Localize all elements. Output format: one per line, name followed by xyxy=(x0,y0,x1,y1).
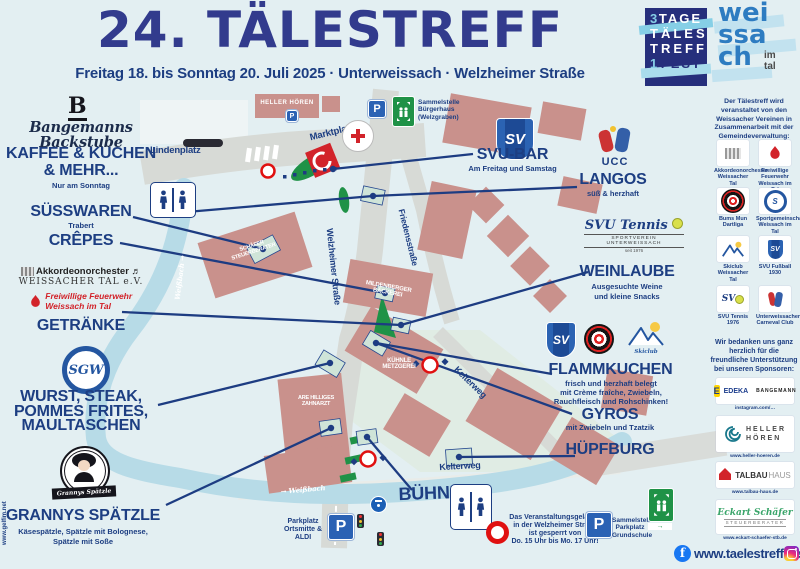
stall-crepes-title: CRÊPES xyxy=(0,233,162,250)
stall-kaffee-note: Nur am Sonntag xyxy=(0,182,162,190)
jester-hat-dot xyxy=(610,126,616,132)
club-skiclub: Skiclub Weissacher Tal xyxy=(714,236,752,283)
stall-suesswaren-note: Trabert xyxy=(0,222,162,230)
fest-tage: TAGE xyxy=(659,11,702,26)
jester-mini-blue xyxy=(773,291,782,307)
talbau-bold: TALBAU xyxy=(735,471,767,480)
akkordeon-logo: Akkordeonorchester ♬ WEISSACHER TAL e.V. xyxy=(8,266,154,287)
bangemann-logo: B xyxy=(68,94,87,121)
svu-shield-text: SV xyxy=(505,131,525,148)
club-feuerwehr: Freiwillige Feuerwehr Weissach im Tal xyxy=(756,140,794,193)
festival-poster: 24. TÄLESTREFF Freitag 18. bis Sonntag 2… xyxy=(0,0,800,569)
house-icon xyxy=(719,470,731,480)
grannys-banner-text: Grannys Spätzle xyxy=(57,488,112,498)
path-sign-glyph-2 xyxy=(377,504,380,507)
building-kuehnle: KÜHNLE METZGEREI xyxy=(372,358,426,370)
club-caption: SVU Tennis 1976 xyxy=(714,314,752,327)
parking-sign-aldi: P xyxy=(328,514,354,540)
parking-sign-top: P xyxy=(368,100,386,118)
edeka-logo-icon: E xyxy=(714,385,720,397)
assembly-top-line3: (Welzgraben) xyxy=(418,114,478,121)
svu-shield-small-text: SV xyxy=(553,333,569,347)
mountain-sun-icon xyxy=(626,320,666,348)
ucc-jester-logo xyxy=(596,126,636,158)
building-heller-hoeren: HELLER HÖREN xyxy=(256,100,318,106)
parking-aldi-caption: Parkplatz Ortsmitte & ALDI xyxy=(280,518,326,542)
aldi-line2: Ortsmitte & xyxy=(280,526,326,534)
svu-tennis-logo: SVU Tennis SPORTVEREIN UNTERWEISSACH sei… xyxy=(584,216,684,253)
wc-person-icon-2 xyxy=(178,189,187,211)
club-caption: SVU Fußball 1930 xyxy=(756,264,794,277)
stall-grannys-note-1: Käsespätzle, Spätzle mit Bolognese, xyxy=(0,528,166,536)
stall-flammkuchen-note-3: Rauchfleisch und Rohschinken! xyxy=(545,398,677,406)
assembly-top-line1: Sammelstelle xyxy=(418,99,478,106)
club-ucc: Unterweissacher Carneval Club xyxy=(756,286,794,327)
assembly-bottom-line3: Grundschule xyxy=(612,532,648,539)
club-dartliga: Bums Mun Dartliga xyxy=(714,188,752,229)
eckart-sub: STEUERBERATER xyxy=(724,519,787,527)
assembly-pictogram xyxy=(396,101,411,122)
assembly-bottom-line1: Sammelstelle xyxy=(612,517,648,524)
bmdl-dart-logo xyxy=(584,324,614,354)
shield-mini-icon: SV xyxy=(768,240,783,259)
stall-getraenke-title: GETRÄNKE xyxy=(0,318,162,335)
skiclub-logo: Skiclub xyxy=(624,320,668,355)
zahnarzt-line2: ZAHNARZT xyxy=(290,402,342,408)
p-letter: P xyxy=(373,103,380,115)
svu-shield-logo-small: SV xyxy=(546,322,576,358)
club-caption: Skiclub Weissacher Tal xyxy=(714,264,752,283)
p-letter-aldi: P xyxy=(336,518,347,536)
stall-langos-title: LANGOS xyxy=(570,172,656,189)
stall-weinlaube-note-1: Ausgesuchte Weine xyxy=(572,283,682,291)
feuerwehr-line2: Weissach im Tal xyxy=(45,302,132,312)
stall-kaffee-title-1: KAFFEE & KUCHEN xyxy=(0,146,162,163)
club-akkordeon: Akkordeonorchester Weissacher Tal xyxy=(714,140,752,187)
stall-weinlaube-title: WEINLAUBE xyxy=(572,264,682,281)
bangemann-logo-letter: B xyxy=(68,93,87,119)
accordion-mini-icon xyxy=(725,148,741,159)
wurst-line3: MAULTASCHEN xyxy=(0,419,162,434)
notice-line4: Do. 15 Uhr bis Mo. 17 Uhr! xyxy=(508,538,602,546)
sponsor-heller-caption: www.heller-hoeren.de xyxy=(716,454,794,459)
sidebar-intro: Der Tälestreff wird veranstaltet von den… xyxy=(710,98,798,142)
heller-name1: HELLER xyxy=(746,425,786,434)
assembly-top-caption: Sammelstelle Bürgerhaus (Welzgraben) xyxy=(418,99,478,121)
assembly-point-sign-bottom xyxy=(648,488,674,522)
eckart-script: Eckart Schäfer xyxy=(717,508,792,518)
mountain-sun-mini-icon xyxy=(721,240,745,258)
stall-gyros-note: mit Zwiebeln und Tzatzik xyxy=(545,424,675,432)
dartboard-icon xyxy=(721,189,745,213)
sgw-initials: SGW xyxy=(68,363,103,378)
granny-body xyxy=(74,472,94,482)
road-closed-sign xyxy=(486,521,509,544)
designer-url: www.gelfim.net xyxy=(2,475,8,545)
fest-treff: TREFF xyxy=(650,41,707,56)
flame-icon xyxy=(30,295,41,308)
p-letter-school: P xyxy=(594,516,605,534)
stall-weinlaube-note-2: und kleine Snacks xyxy=(572,293,682,301)
club-caption: Unterweissacher Carneval Club xyxy=(756,314,794,327)
stall-suesswaren-title: SÜSSWAREN xyxy=(0,204,162,221)
wc-person-icon xyxy=(159,189,168,211)
sponsor-eckart-schaefer: Eckart Schäfer STEUERBERATER xyxy=(716,500,794,534)
page-title: 24. TÄLESTREFF xyxy=(40,4,620,56)
parking-sign-school: P xyxy=(586,512,612,538)
talbau-light: HAUS xyxy=(769,471,791,480)
kuehnle-line2: METZGEREI xyxy=(372,364,426,370)
fest-fest: FEST xyxy=(661,56,702,71)
tennis-ball-icon xyxy=(672,218,683,229)
stall-svubar-note: Am Freitag und Samstag xyxy=(455,165,570,173)
assembly-point-sign-top xyxy=(392,96,415,127)
facebook-icon[interactable]: f xyxy=(674,545,691,562)
music-note-icon: ♬ xyxy=(132,266,142,277)
town-tal: tal xyxy=(764,61,776,72)
stall-grannys-note-2: Spätzle mit Soße xyxy=(0,538,166,546)
jester-figure-red xyxy=(598,129,615,153)
skiclub-script: Skiclub xyxy=(624,349,668,355)
tennis-year: seit 1976 xyxy=(584,248,684,253)
path-sign-glyph xyxy=(375,500,382,502)
taelestreff-fest-logo: 3TAGE TÄLES TREFF 1FEST xyxy=(645,8,707,86)
sidebar-thanks: Wir bedanken uns ganz herzlich für die f… xyxy=(710,338,798,374)
stall-kaffee-title-2: & MEHR... xyxy=(0,163,162,180)
wc-person-icon-3 xyxy=(457,494,466,520)
aldi-line1: Parkplatz xyxy=(280,518,326,526)
sponsor-heller-hoeren: HELLER HÖREN xyxy=(716,416,794,452)
stall-gyros-title: GYROS xyxy=(545,407,675,424)
wc-person-icon-4 xyxy=(476,494,485,520)
fest-3: 3 xyxy=(650,11,657,26)
sgw-logo: SGW xyxy=(62,346,110,394)
jester-figure-blue xyxy=(614,127,631,153)
assembly-top-line2: Bürgerhaus xyxy=(418,106,478,113)
aldi-line3: ALDI xyxy=(280,534,326,542)
edeka-name: EDEKA xyxy=(724,388,749,395)
tennis-ball-mini-icon xyxy=(735,295,744,304)
tennis-script: SVU Tennis xyxy=(585,218,668,233)
town-im: im xyxy=(764,50,776,61)
granny-face xyxy=(78,460,90,471)
green-arrow-icon: → xyxy=(657,524,664,530)
ucc-logo-text: UCC xyxy=(592,157,638,168)
accordion-icon xyxy=(21,267,34,276)
street-lindenplatz: Lindenplatz xyxy=(150,146,222,156)
instagram-icon[interactable] xyxy=(784,546,799,561)
sgw-mini-icon: S xyxy=(764,190,787,213)
stall-svubar-title: SVU-BAR xyxy=(455,147,570,164)
club-svu-fussball: SV SVU Fußball 1930 xyxy=(756,236,794,277)
club-sgw: S Sportgemeinschaft Weissach im Tal xyxy=(756,188,794,235)
stall-flammkuchen-title: FLAMMKUCHEN xyxy=(538,362,683,379)
stall-flammkuchen-note-2: mit Crème fraîche, Zwiebeln, xyxy=(545,389,677,397)
akkordeon-line2: WEISSACHER TAL e.V. xyxy=(8,277,154,287)
assembly-bottom-caption: Sammelstelle Parkplatz Grundschule xyxy=(612,517,648,539)
shared-path-sign xyxy=(370,496,387,513)
assembly-bottom-line2: Parkplatz xyxy=(612,524,648,531)
club-svu-tennis: SV SVU Tennis 1976 xyxy=(714,286,752,327)
assembly-pictogram-2 xyxy=(653,493,670,517)
page-subtitle: Freitag 18. bis Sonntag 20. Juli 2025 · … xyxy=(40,66,620,82)
weissach-im-tal-logo: wei ssa ch im tal xyxy=(712,2,798,92)
p-letter-small: P xyxy=(290,113,295,120)
stall-wurst-title: WURST, STEAK, POMMES FRITES, MAULTASCHEN xyxy=(0,390,162,434)
sponsor-talbau-caption: www.talbau-haus.de xyxy=(716,490,794,495)
bangemann-name: BANGEMANN xyxy=(756,388,796,394)
sponsor-edeka-bangemann: E EDEKA BANGEMANN xyxy=(716,378,794,404)
drk-red-cross-badge xyxy=(342,120,374,152)
sponsor-talbauhaus: TALBAUHAUS xyxy=(716,462,794,488)
assembly-arrow-strip: → xyxy=(648,523,672,530)
stall-huepfburg-title: HÜPFBURG xyxy=(545,442,675,459)
stall-langos-note: süß & herzhaft xyxy=(570,190,656,198)
wc-sign-upper xyxy=(150,182,196,218)
red-cross-icon-bar xyxy=(351,134,365,138)
stall-grannys-title: GRANNYS SPÄTZLE xyxy=(0,508,166,525)
tennis-subline: SPORTVEREIN UNTERWEISSACH xyxy=(584,234,684,248)
sponsor-edeka-caption: instagram.com/… xyxy=(716,406,794,411)
sponsor-eckart-caption: www.eckart-schaefer-stb.de xyxy=(716,536,794,541)
akkordeon-line1: Akkordeonorchester xyxy=(36,266,129,277)
flame-mini-icon xyxy=(769,146,781,160)
club-caption: Bums Mun Dartliga xyxy=(714,216,752,229)
spiral-icon xyxy=(724,425,742,443)
website-link[interactable]: www.taelestreff.de xyxy=(694,546,784,561)
traffic-light-icon xyxy=(357,514,364,528)
fest-taeles: TÄLES xyxy=(650,26,708,41)
traffic-light-icon-2 xyxy=(377,532,384,546)
parking-sign-small: P xyxy=(286,110,298,122)
club-caption: Akkordeonorchester Weissacher Tal xyxy=(714,168,752,187)
feuerwehr-logo: Freiwillige Feuerwehr Weissach im Tal xyxy=(14,292,148,312)
building-zahnarzt: ARE HILLIGES ZAHNARZT xyxy=(290,396,342,407)
heller-name2: HÖREN xyxy=(746,434,786,443)
club-caption: Sportgemeinschaft Weissach im Tal xyxy=(756,216,794,235)
wc-sign-lower xyxy=(450,484,492,530)
fest-1: 1 xyxy=(650,56,657,71)
stall-flammkuchen-note-1: frisch und herzhaft belegt xyxy=(545,380,677,388)
